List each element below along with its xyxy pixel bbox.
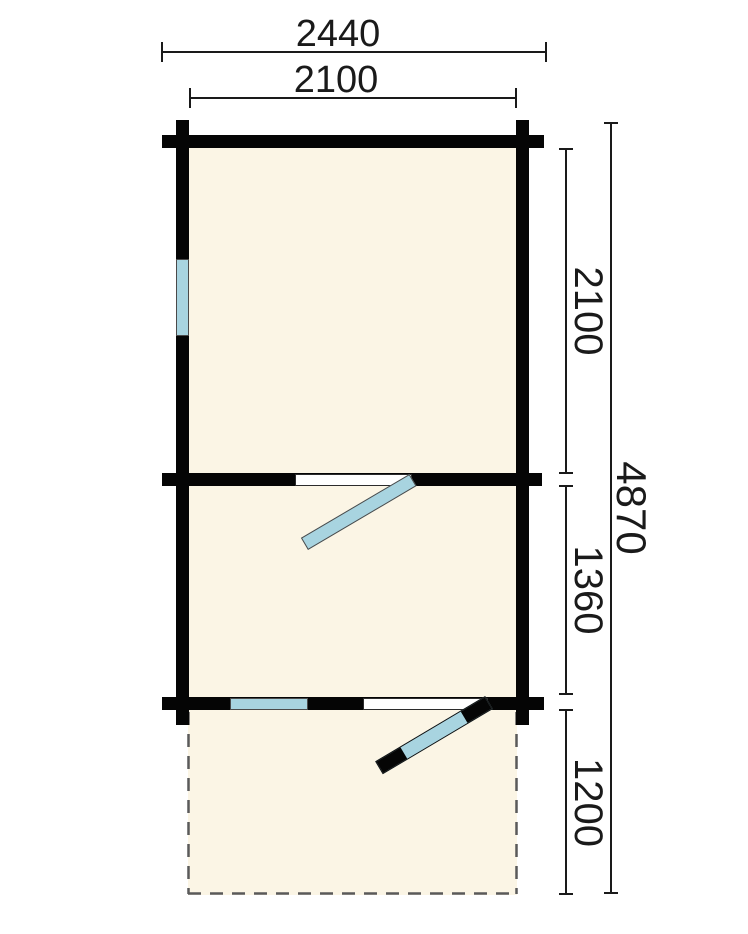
dim-middle-room-depth-label: 1360 xyxy=(568,486,608,694)
floor-plan: 2440 2100 2100 1360 1200 4870 xyxy=(0,0,748,934)
right-wall xyxy=(516,120,529,725)
dim-tick xyxy=(515,88,517,108)
dim-overall-width-label: 2440 xyxy=(296,15,381,53)
dim-main-room-depth-label: 2100 xyxy=(568,149,608,473)
dim-inner-width-label: 2100 xyxy=(294,61,379,99)
left-wall-window xyxy=(176,259,189,336)
dim-tick xyxy=(189,88,191,108)
dim-terrace-depth-label: 1200 xyxy=(568,710,608,895)
front-wall-window xyxy=(230,698,308,710)
dim-tick xyxy=(161,42,163,62)
dim-overall-depth-label: 4870 xyxy=(610,123,652,893)
dim-tick xyxy=(545,42,547,62)
left-wall xyxy=(176,120,189,725)
top-wall xyxy=(162,135,544,148)
